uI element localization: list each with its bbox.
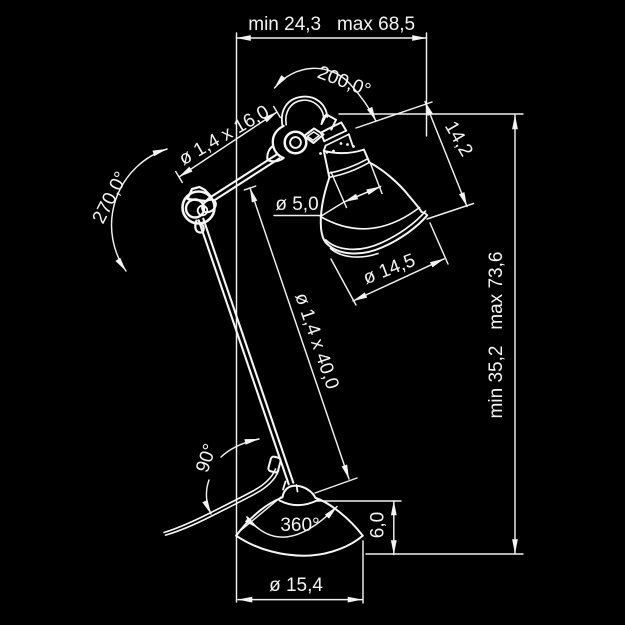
svg-text:ø 1,4 x 40,0: ø 1,4 x 40,0 — [290, 290, 343, 392]
svg-text:200,0°: 200,0° — [314, 62, 373, 101]
svg-text:90°: 90° — [192, 441, 221, 475]
svg-text:ø 1,4 x 16,0: ø 1,4 x 16,0 — [176, 102, 273, 170]
svg-text:ø 5,0: ø 5,0 — [275, 194, 318, 215]
svg-text:360°: 360° — [280, 515, 319, 536]
svg-text:min 24,3 max 68,5: min 24,3 max 68,5 — [248, 14, 415, 35]
svg-text:270,0°: 270,0° — [89, 168, 133, 227]
svg-text:ø 15,4: ø 15,4 — [269, 575, 323, 596]
svg-text:6,0: 6,0 — [368, 512, 389, 538]
svg-text:min 35,2 max 73,6: min 35,2 max 73,6 — [486, 252, 507, 419]
